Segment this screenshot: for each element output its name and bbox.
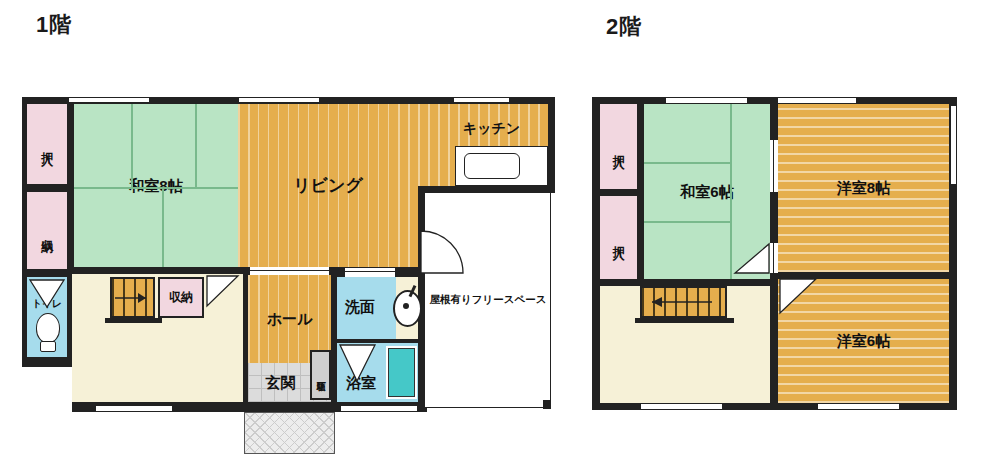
label-yokushitsu: 浴室 [346, 375, 376, 391]
label-washitsu8: 和室8帖 [129, 178, 182, 194]
tatami-line [644, 162, 731, 164]
label-oshiire-top: 押入 [612, 145, 625, 149]
label-free-space: 屋根有りフリースペース [425, 289, 551, 307]
label-oshiire-bottom: 押入 [612, 236, 625, 240]
room-yoshitsu6: 洋室6帖 [778, 279, 949, 403]
drain-icon [403, 303, 409, 309]
room-senmen: 洗面 [337, 277, 418, 339]
floor1-title: 1階 [36, 10, 72, 40]
floor2-title: 2階 [606, 12, 642, 42]
room-oshiire: 押入 [27, 104, 67, 184]
label-shuno-left: 収納 [41, 229, 54, 233]
room-washitsu6: 和室6帖 [644, 104, 770, 279]
tatami-line [730, 104, 732, 279]
room-shuno-stairs: 収納 [158, 277, 204, 318]
label-senmen: 洗面 [345, 299, 375, 315]
tatami-line [162, 188, 164, 267]
window [238, 97, 320, 103]
door-opening [345, 268, 395, 277]
room-toilet: トイレ [27, 277, 67, 357]
window [777, 97, 857, 104]
label-kitchen: キッチン [435, 119, 548, 137]
label-hall: ホール [267, 311, 313, 327]
label-shuno-stairs: 収納 [169, 291, 193, 304]
room-oshiire-top: 押入 [600, 104, 637, 189]
label-yoshitsu6: 洋室6帖 [837, 333, 890, 349]
wall [105, 318, 162, 323]
door-opening [770, 243, 778, 273]
tatami-line [131, 104, 133, 188]
stairs-up-icon [640, 286, 727, 318]
getabako-cabinet: 下駄箱 [310, 350, 331, 400]
stairs-down-icon [110, 277, 155, 318]
tatami-line [195, 104, 197, 188]
window [817, 403, 900, 410]
label-toilet: トイレ [27, 299, 67, 310]
tatami-line [74, 187, 238, 189]
window [453, 97, 510, 103]
label-living: リビング [238, 177, 418, 195]
floor2-plan: 押入 押入 和室6帖 洋室8帖 洋室6帖 [592, 97, 957, 410]
label-oshiire: 押入 [41, 142, 54, 146]
label-genkan: 玄関 [266, 375, 296, 391]
door-opening [250, 267, 329, 275]
room-oshiire-bottom: 押入 [600, 196, 637, 279]
door-opening [770, 140, 778, 192]
window [340, 405, 418, 412]
floorplan-page: { "page_type": "japanese-house-floor-pla… [0, 0, 998, 466]
floor1-plan: 屋根有りフリースペース 押入 収納 トイレ 和室8帖 リビング キッチン 収納 [22, 97, 555, 457]
entrance-porch [244, 412, 335, 454]
label-washitsu6: 和室6帖 [680, 184, 733, 200]
window [950, 105, 957, 185]
window [665, 97, 748, 104]
tatami-line [644, 221, 731, 223]
room-yokushitsu: 浴室 [337, 343, 418, 402]
room-washitsu8: 和室8帖 [74, 104, 238, 267]
window [640, 403, 723, 410]
room-shuno-left: 収納 [27, 192, 67, 269]
window [68, 97, 150, 103]
wall [543, 400, 551, 409]
room-yoshitsu8: 洋室8帖 [778, 104, 949, 272]
kitchen-counter [455, 146, 548, 186]
bathtub-icon [388, 348, 415, 397]
kitchen-sink-icon [464, 153, 520, 179]
wall [635, 318, 734, 323]
label-yoshitsu8: 洋室8帖 [837, 180, 890, 196]
window [95, 405, 173, 412]
